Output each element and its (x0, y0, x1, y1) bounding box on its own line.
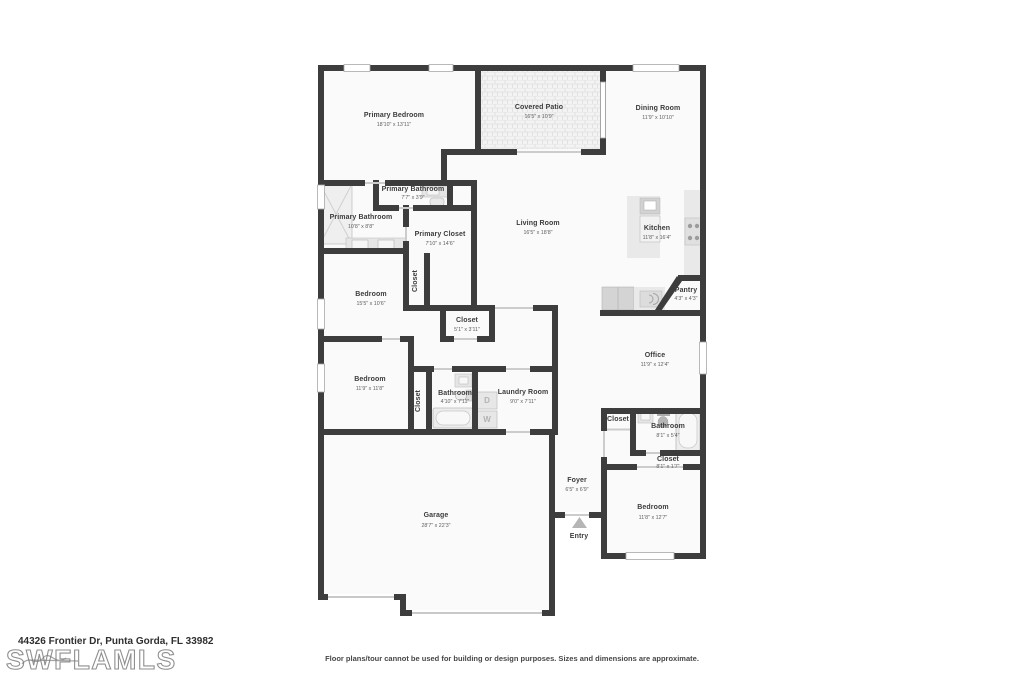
stove-icon (685, 218, 701, 245)
room-dims-living-room: 16'5" x 18'8" (523, 230, 552, 236)
room-dims-primary-bedroom: 18'10" x 13'11" (377, 122, 412, 128)
room-label-closet-strip-1: Closet (412, 269, 419, 292)
room-label-bedroom-2: Bedroom (355, 291, 386, 298)
room-label-office: Office (645, 352, 665, 359)
room-dims-garage: 28'7" x 22'3" (421, 523, 450, 529)
room-dims-pantry: 4'3" x 4'3" (674, 296, 697, 302)
room-label-foyer: Foyer (567, 477, 587, 484)
room-dims-bedroom-2: 15'5" x 10'6" (356, 301, 385, 307)
room-dims-bedroom-3: 11'9" x 11'8" (356, 386, 384, 392)
room-label-bedroom-3: Bedroom (354, 376, 385, 383)
disclaimer-text: Floor plans/tour cannot be used for buil… (0, 654, 1024, 663)
room-label-bedroom-closet: Closet (657, 456, 680, 463)
room-label-dining-room: Dining Room (636, 105, 681, 112)
sink-icon (641, 413, 650, 420)
floor-plan-drawing: D W (0, 0, 1024, 682)
room-dims-hall-closet: 5'1" x 3'11" (454, 327, 480, 333)
room-label-hall-bathroom: Bathroom (438, 390, 472, 397)
room-label-laundry-room: Laundry Room (498, 389, 549, 396)
room-label-pantry: Pantry (675, 287, 697, 294)
room-label-covered-patio: Covered Patio (515, 104, 563, 111)
sink-icon (459, 377, 468, 384)
washer-label: W (483, 415, 491, 424)
room-label-back-bathroom: Bathroom (651, 423, 685, 430)
room-label-kitchen: Kitchen (644, 225, 670, 232)
room-label-living-room: Living Room (516, 220, 560, 227)
room-dims-kitchen: 11'8" x 16'4" (643, 235, 672, 241)
room-label-closet-strip-2: Closet (415, 389, 422, 412)
room-label-primary-bathroom: Primary Bathroom (330, 214, 393, 221)
room-dims-back-bathroom: 8'1" x 5'4" (656, 433, 679, 439)
entry-arrow-icon (572, 517, 587, 528)
room-dims-office: 11'9" x 12'4" (641, 362, 670, 368)
room-dims-primary-closet: 7'10" x 14'6" (425, 241, 454, 247)
room-label-primary-bedroom: Primary Bedroom (364, 112, 424, 119)
sink-icon (352, 240, 368, 249)
room-dims-dining-room: 11'9" x 10'10" (642, 115, 674, 121)
room-dims-bedroom-4: 11'8" x 12'7" (639, 515, 668, 521)
room-dims-hall-bathroom: 4'10" x 7'11" (441, 399, 470, 405)
room-dims-foyer: 6'5" x 6'9" (565, 487, 588, 493)
room-dims-primary-bathroom-small: 7'7" x 3'9" (401, 195, 424, 201)
room-dims-primary-bathroom: 10'8" x 8'8" (348, 224, 374, 230)
toilet-icon (430, 198, 444, 206)
floor-plan-page: D W (0, 0, 1024, 682)
room-dims-laundry-room: 9'0" x 7'11" (510, 399, 536, 405)
entry-label: Entry (570, 533, 588, 540)
dryer-label: D (484, 396, 490, 405)
room-label-primary-bathroom-small: Primary Bathroom (382, 186, 445, 193)
kitchen-sink-icon (644, 201, 656, 210)
room-label-primary-closet: Primary Closet (415, 231, 466, 238)
room-dims-covered-patio: 16'5" x 10'9" (524, 114, 553, 120)
room-label-hall-closet: Closet (456, 317, 479, 324)
sink-icon (378, 240, 394, 249)
room-label-bedroom-4: Bedroom (637, 504, 668, 511)
room-label-garage: Garage (424, 512, 449, 519)
room-label-back-closet: Closet (607, 416, 630, 423)
room-dims-bedroom-closet: 8'1" x 1'7" (656, 464, 679, 470)
